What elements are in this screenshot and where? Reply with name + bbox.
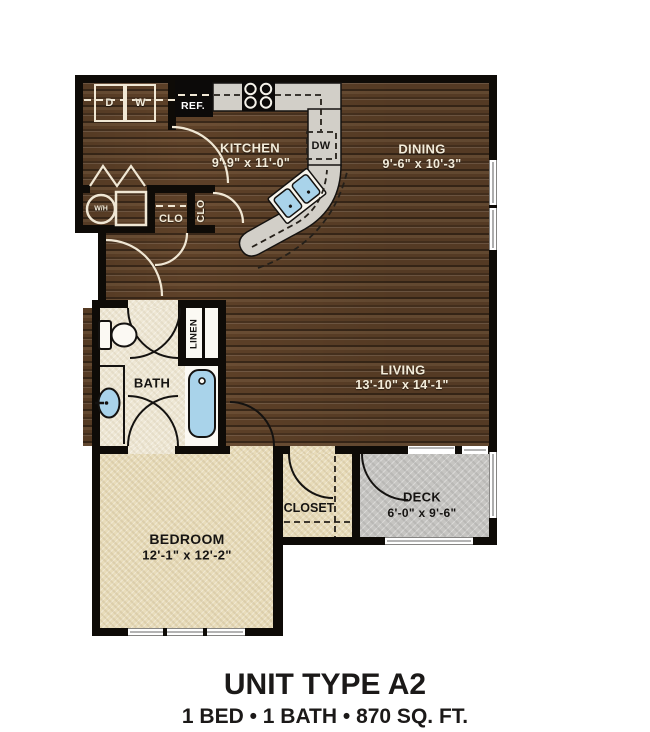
closet-label: CLOSET [284, 501, 335, 515]
kitchen-dims: 9'-9" x 11'-0" [212, 156, 290, 170]
plan-symbols [0, 0, 650, 732]
bathtub-drain [199, 378, 205, 384]
bath-faucet-dot [105, 401, 109, 405]
living-dims: 13'-10" x 14'-1" [355, 378, 448, 392]
unit-type-subtitle: 1 BED • 1 BATH • 870 SQ. FT. [0, 705, 650, 729]
hvac-unit [116, 192, 146, 225]
washer-label: W [135, 97, 146, 109]
deck-dims: 6'-0" x 9'-6" [387, 506, 456, 520]
clo1-label: CLO [159, 213, 183, 225]
dining-label: DINING [398, 142, 445, 157]
bedroom-dims: 12'-1" x 12'-2" [142, 548, 232, 563]
deck-label: DECK [403, 490, 441, 505]
toilet-tank [99, 321, 111, 349]
toilet-bowl [112, 324, 137, 347]
windows [128, 160, 497, 636]
caption: UNIT TYPE A2 1 BED • 1 BATH • 870 SQ. FT… [0, 668, 650, 729]
refrigerator-label: REF. [181, 100, 205, 112]
dryer-label: D [105, 97, 113, 109]
water-heater-label: W/H [94, 206, 108, 213]
dining-dims: 9'-6" x 10'-3" [383, 157, 462, 171]
dishwasher-label: DW [312, 140, 331, 152]
counter-top-run [213, 83, 341, 111]
unit-type-title: UNIT TYPE A2 [0, 668, 650, 702]
living-label: LIVING [380, 363, 425, 378]
kitchen-label: KITCHEN [220, 141, 280, 156]
bath-label: BATH [134, 376, 170, 391]
bedroom-label: BEDROOM [149, 531, 224, 547]
floor-plan: KITCHEN 9'-9" x 11'-0" DINING 9'-6" x 10… [0, 0, 650, 732]
door-swings-dark [128, 308, 408, 500]
linen-label: LINEN [189, 319, 200, 349]
clo2-label: CLO [195, 199, 207, 222]
